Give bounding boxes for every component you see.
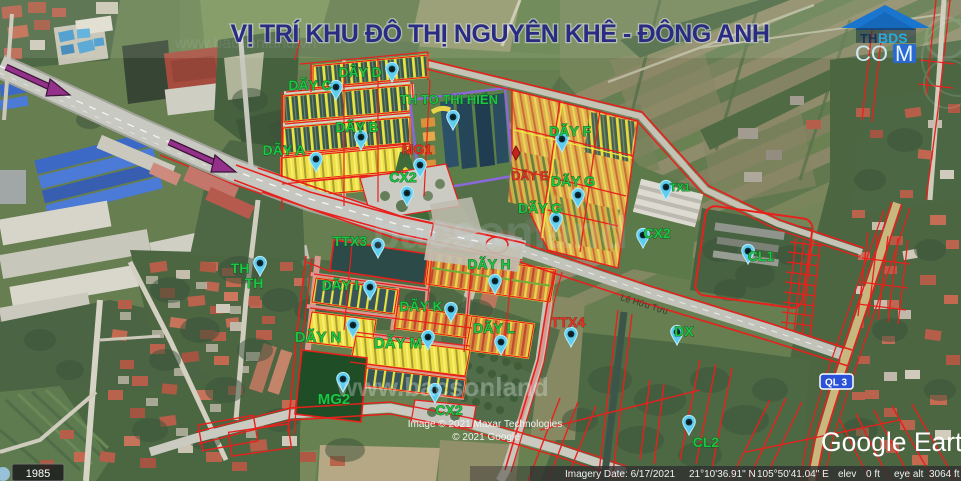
svg-text:DÃY A: DÃY A: [263, 141, 306, 158]
svg-text:VỊ TRÍ KHU ĐÔ THỊ NGUYÊN KHÊ -: VỊ TRÍ KHU ĐÔ THỊ NGUYÊN KHÊ - ĐÔNG ANH: [230, 18, 769, 48]
svg-text:CX2: CX2: [643, 225, 670, 241]
svg-text:TH: TH: [231, 260, 250, 276]
svg-text:MG1: MG1: [402, 141, 433, 157]
svg-text:CL1: CL1: [748, 248, 775, 264]
svg-text:DÃY B: DÃY B: [335, 118, 378, 135]
svg-text:DÃY D: DÃY D: [338, 63, 381, 80]
svg-text:0 ft: 0 ft: [866, 469, 880, 480]
svg-text:DÃY C: DÃY C: [288, 76, 331, 93]
svg-text:3064 ft: 3064 ft: [929, 469, 960, 480]
svg-text:www.bacsonland: www.bacsonland: [336, 372, 548, 402]
svg-text:TTX3: TTX3: [333, 233, 367, 249]
svg-text:DÃY L: DÃY L: [473, 319, 515, 336]
svg-text:DÃY M: DÃY M: [374, 334, 422, 352]
svg-text:TH: TH: [245, 275, 264, 291]
svg-text:DÃY K: DÃY K: [399, 297, 442, 314]
svg-text:DÃY E: DÃY E: [512, 168, 548, 183]
svg-text:CO: CO: [855, 41, 888, 66]
svg-text:TX1: TX1: [670, 182, 690, 194]
svg-text:TH TO THI HIỂN: TH TO THI HIỂN: [400, 92, 498, 107]
svg-text:DÃY G: DÃY G: [551, 172, 595, 189]
svg-text:CX2: CX2: [389, 169, 416, 185]
svg-text:DÃY F: DÃY F: [549, 122, 591, 139]
svg-text:© 2021 Google: © 2021 Google: [452, 432, 520, 443]
svg-text:elev: elev: [838, 469, 856, 480]
svg-text:21°10'36.91" N: 21°10'36.91" N: [689, 469, 756, 480]
svg-text:DX: DX: [674, 323, 694, 339]
svg-text:Image © 2021 Maxar Technologie: Image © 2021 Maxar Technologies: [408, 419, 563, 430]
svg-text:M: M: [895, 41, 913, 66]
svg-text:TTX4: TTX4: [551, 314, 585, 330]
svg-text:Imagery Date: 6/17/2021: Imagery Date: 6/17/2021: [565, 469, 676, 480]
svg-text:eye alt: eye alt: [894, 469, 924, 480]
svg-text:DÃY I: DÃY I: [321, 276, 358, 293]
svg-text:DÃY N: DÃY N: [295, 328, 341, 346]
svg-text:CX2: CX2: [435, 402, 462, 418]
svg-text:bacsonland: bacsonland: [372, 206, 628, 258]
svg-text:105°50'41.04" E: 105°50'41.04" E: [757, 469, 829, 480]
svg-text:Google Earth: Google Earth: [821, 427, 961, 457]
svg-text:CL2: CL2: [693, 434, 720, 450]
svg-text:QL 3: QL 3: [825, 378, 847, 389]
svg-text:1985: 1985: [26, 468, 50, 480]
